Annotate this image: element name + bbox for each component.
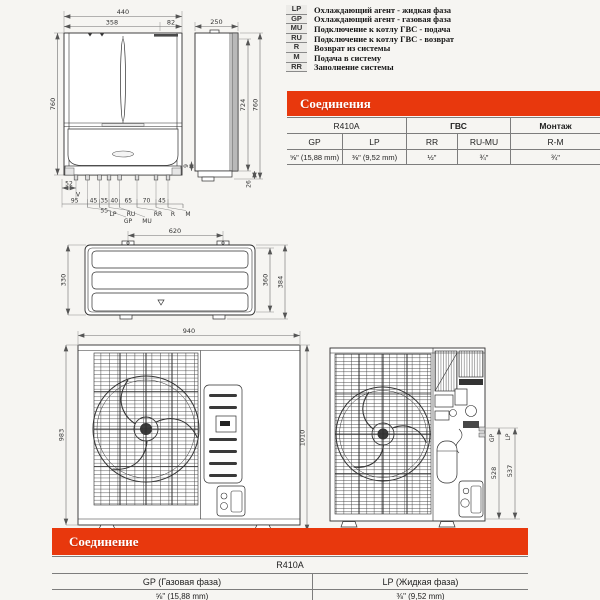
legend-item: MU Подключение к котлу ГВС - подача — [286, 24, 454, 34]
dim-row-40: 40 — [110, 198, 118, 205]
dim-top-620: 620 — [169, 227, 181, 235]
dim-internal-528: 528 — [490, 467, 498, 479]
legend-list: LP Охлаждающий агент - жидкая фаза GP Ох… — [286, 5, 454, 72]
group-r410a: R410A — [287, 118, 406, 133]
col-r-m: R-M — [510, 134, 600, 149]
port-label-rr: RR — [154, 211, 162, 218]
legend-desc-mu: Подключение к котлу ГВС - подача — [314, 24, 451, 34]
connection-header-band: Соединение — [52, 528, 528, 555]
col-rr: RR — [406, 134, 457, 149]
val-gp: ⅝" (15,88 mm) — [287, 150, 342, 164]
indoor-top-vent — [154, 34, 178, 37]
col-lp-liquid: LP (Жидкая фаза) — [312, 574, 528, 589]
port-label-lp: LP — [110, 211, 117, 218]
dim-top-330: 330 — [60, 274, 68, 286]
legend-item: GP Охлаждающий агент - газовая фаза — [286, 15, 454, 25]
val-r-m: ¾" — [510, 150, 600, 164]
port-label-m: M — [185, 211, 190, 218]
port-label-ru: RU — [127, 211, 136, 218]
val-lp-liquid: ⅜" (9,52 mm) — [312, 590, 528, 600]
connections-header-band: Соединения — [287, 91, 600, 116]
dim-row-sub-55: 55 — [100, 208, 108, 215]
dim-indoor-height: 760 — [49, 98, 57, 110]
dim-indoor-358: 358 — [106, 19, 118, 27]
port-label-r: R — [171, 211, 175, 218]
legend-item: LP Охлаждающий агент - жидкая фаза — [286, 5, 454, 15]
connection-table-label-row: GP (Газовая фаза) LP (Жидкая фаза) — [52, 574, 528, 590]
brand-badge — [113, 151, 134, 157]
col-ru-mu: RU-MU — [457, 134, 510, 149]
dim-row-45b: 45 — [158, 198, 166, 205]
indoor-unit-drawing: 440 358 82 760 — [52, 3, 282, 230]
legend-desc-ru: Подключение к котлу ГВС - возврат — [314, 34, 454, 44]
legend-desc-rr: Заполнение системы — [314, 62, 394, 72]
group-gvs: ГВС — [406, 118, 510, 133]
dim-row-70: 70 — [143, 198, 151, 205]
dim-front-940: 940 — [183, 327, 195, 335]
dim-front-1010: 1010 — [299, 430, 307, 447]
val-lp: ⅜" (9,52 mm) — [342, 150, 406, 164]
connections-table-label-row: GP LP RR RU-MU R-M — [287, 134, 600, 150]
dim-offset-52: 52 — [65, 181, 73, 188]
dim-side-26: 26 — [246, 180, 253, 188]
outdoor-unit-top-view: 620 330 360 384 — [58, 226, 303, 328]
connection-table-value-row: ⅝" (15,88 mm) ⅜" (9,52 mm) — [52, 590, 528, 600]
legend-item: M Подача в систему — [286, 53, 454, 63]
dim-side-depth: 250 — [210, 18, 222, 26]
dim-row-45a: 45 — [90, 198, 98, 205]
dim-top-360: 360 — [262, 274, 270, 286]
dim-label-lp: LP — [505, 433, 512, 440]
val-rr: ½" — [406, 150, 457, 164]
dim-row-35: 35 — [100, 198, 108, 205]
col-gp: GP — [287, 134, 342, 149]
dim-top-384: 384 — [277, 276, 285, 288]
indoor-connection-stubs — [74, 175, 170, 180]
service-panel — [204, 385, 242, 483]
dim-side-724: 724 — [239, 99, 247, 111]
col-lp: LP — [342, 134, 406, 149]
col-gp-gas: GP (Газовая фаза) — [52, 574, 312, 589]
dim-side-9: 9 — [183, 164, 190, 168]
legend-item: RR Заполнение системы — [286, 63, 454, 73]
dim-row-95: 95 — [71, 198, 79, 205]
dim-front-983: 983 — [58, 429, 66, 441]
connection-title: Соединение — [69, 534, 139, 550]
legend-item: R Возврат из системы — [286, 43, 454, 53]
port-label-gp: GP — [124, 218, 133, 225]
connection-table: R410A GP (Газовая фаза) LP (Жидкая фаза)… — [52, 556, 528, 600]
dim-indoor-82: 82 — [167, 19, 175, 27]
dim-indoor-width: 440 — [117, 8, 129, 16]
connections-table-value-row: ⅝" (15,88 mm) ⅜" (9,52 mm) ½" ¾" ¾" — [287, 150, 600, 165]
connections-table-group-row: R410A ГВС Монтаж — [287, 118, 600, 134]
outdoor-unit-internal-view: GP LP 528 537 — [313, 333, 528, 543]
val-gp-gas: ⅝" (15,88 mm) — [52, 590, 312, 600]
legend-desc-m: Подача в систему — [314, 53, 381, 63]
spec-sheet-page: LP Охлаждающий агент - жидкая фаза GP Ох… — [0, 0, 600, 600]
legend-desc-gp: Охлаждающий агент - газовая фаза — [314, 14, 451, 24]
legend-desc-lp: Охлаждающий агент - жидкая фаза — [314, 5, 451, 15]
legend-item: RU Подключение к котлу ГВС - возврат — [286, 34, 454, 44]
outdoor-unit-front-view: 940 — [58, 326, 312, 538]
dim-row-65: 65 — [124, 198, 132, 205]
val-ru-mu: ¾" — [457, 150, 510, 164]
connections-table: R410A ГВС Монтаж GP LP RR RU-MU R-M ⅝" (… — [287, 117, 600, 165]
dim-side-760: 760 — [252, 99, 260, 111]
refrigerant-caption: R410A — [52, 556, 528, 574]
group-montage: Монтаж — [510, 118, 600, 133]
dim-label-gp: GP — [489, 433, 496, 442]
port-label-mu: MU — [142, 218, 152, 225]
legend-abbr-rr: RR — [286, 63, 307, 73]
legend-desc-r: Возврат из системы — [314, 43, 390, 53]
dim-internal-537: 537 — [506, 465, 514, 477]
connections-title: Соединения — [300, 96, 371, 112]
